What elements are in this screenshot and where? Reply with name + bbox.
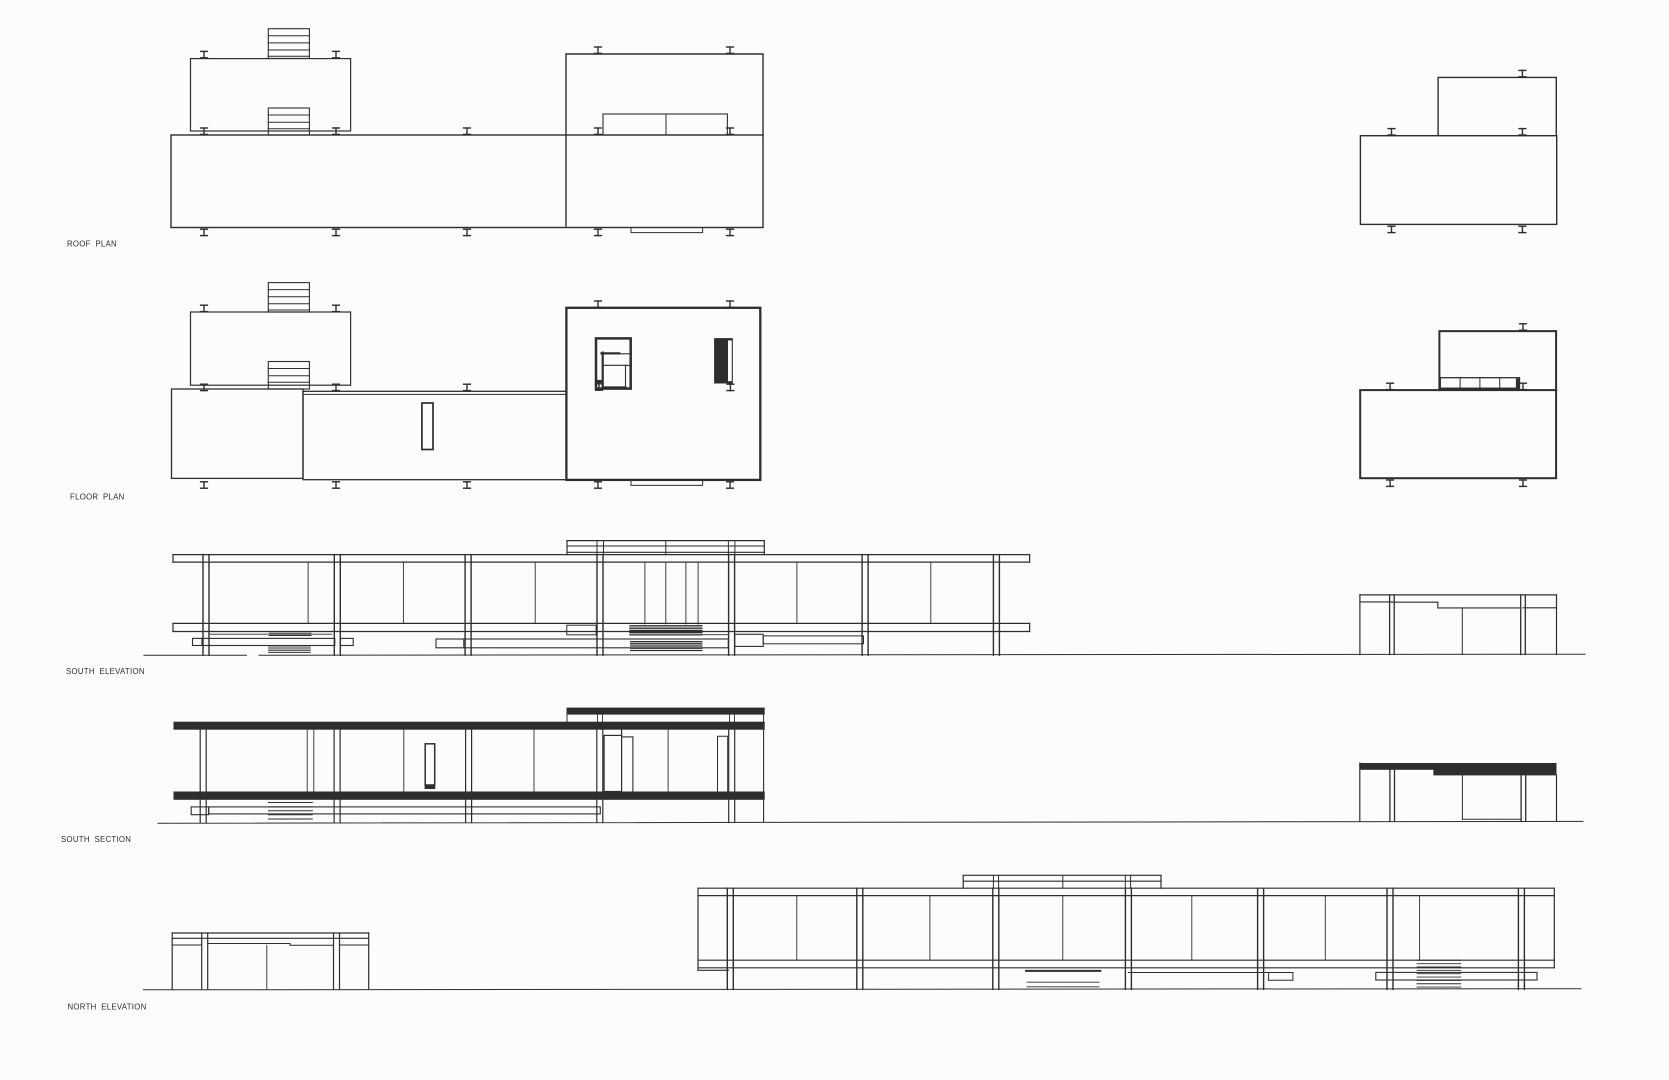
- svg-text:SOUTH ELEVATION: SOUTH ELEVATION: [66, 667, 145, 676]
- svg-text:SOUTH SECTION: SOUTH SECTION: [61, 835, 131, 844]
- svg-text:ROOF PLAN: ROOF PLAN: [67, 240, 117, 249]
- svg-text:FLOOR PLAN: FLOOR PLAN: [70, 493, 125, 502]
- svg-text:NORTH ELEVATION: NORTH ELEVATION: [68, 1003, 147, 1012]
